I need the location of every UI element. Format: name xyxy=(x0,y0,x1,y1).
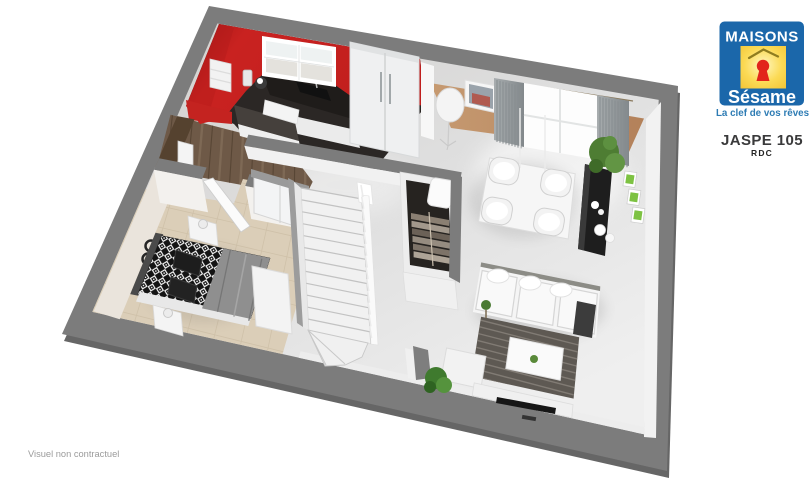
svg-text:Visuel non contractuel: Visuel non contractuel xyxy=(28,449,119,459)
svg-text:MAISONS: MAISONS xyxy=(725,29,799,46)
svg-text:La clef de vos rêves: La clef de vos rêves xyxy=(716,108,810,119)
svg-text:Sésame: Sésame xyxy=(728,87,796,107)
svg-text:RDC: RDC xyxy=(751,148,773,158)
svg-text:JASPE 105: JASPE 105 xyxy=(721,132,803,149)
